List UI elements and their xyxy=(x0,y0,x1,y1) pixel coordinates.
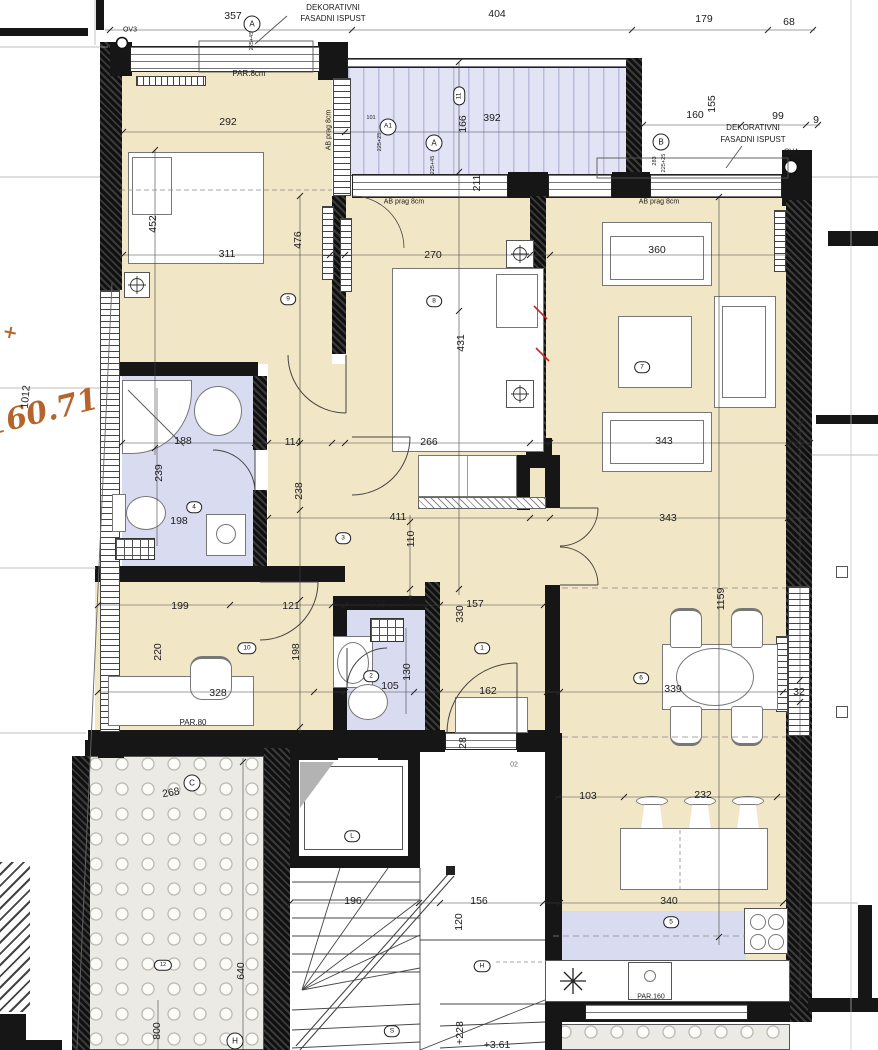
dining-table-top xyxy=(676,648,754,706)
dim: 162 xyxy=(479,686,497,697)
column-marker xyxy=(836,706,848,718)
dim: 330 xyxy=(455,605,466,623)
dim: 33 xyxy=(790,434,801,446)
dim: 339 xyxy=(664,684,682,695)
neighbor-wall xyxy=(808,998,878,1012)
dim: 110 xyxy=(406,531,417,548)
neighbor-wall xyxy=(858,905,872,1000)
dim: 198 xyxy=(170,516,188,527)
dim: 157 xyxy=(466,599,484,610)
room-label-entry-1: 1 xyxy=(474,642,490,654)
dim: 32 xyxy=(793,687,805,698)
dim: 68 xyxy=(783,17,795,28)
wall xyxy=(110,42,132,76)
wall-wc-top xyxy=(345,596,430,610)
terrace-bottom-strip xyxy=(557,1024,790,1050)
chair xyxy=(731,608,763,648)
window-mark: 225+25 xyxy=(378,133,384,152)
room-label-elevator-L: L xyxy=(344,830,360,842)
wall-corner xyxy=(782,150,812,206)
note-dekorativni: FASADNI ISPUST xyxy=(720,136,785,144)
dim: 800 xyxy=(152,1022,163,1040)
dim: 220 xyxy=(153,643,164,661)
wall-terrace-top xyxy=(85,740,290,756)
dim: 452 xyxy=(148,215,159,233)
note-dekorativni: DEKORATIVNI xyxy=(306,4,360,12)
dim: 404 xyxy=(488,9,506,20)
dim: 211 xyxy=(472,175,483,192)
chair xyxy=(731,706,763,746)
terrace-bottom-left xyxy=(88,756,264,1050)
dim: 311 xyxy=(219,249,236,260)
burner xyxy=(750,914,766,930)
sill-bedroom-terrace xyxy=(333,78,351,196)
dim: 156 xyxy=(470,896,488,907)
wall-bathroom-top xyxy=(120,362,258,376)
column-box xyxy=(506,380,534,408)
kitchen-island xyxy=(620,828,768,890)
dim: 357 xyxy=(224,11,242,22)
radiator xyxy=(136,76,206,86)
wall-bathroom-right xyxy=(253,376,267,450)
toilet-bowl xyxy=(126,496,166,530)
room-label-bedroom-9: 9 xyxy=(280,293,296,305)
window-terrace-door xyxy=(352,174,508,198)
dim: 340 xyxy=(660,896,678,907)
threshold-hatch xyxy=(418,497,546,509)
room-label-terrace-12: 12 xyxy=(154,960,172,971)
note-dekorativni: FASADNI ISPUST xyxy=(300,15,365,23)
window-bedroom-9 xyxy=(130,46,320,72)
wall-terrace-left xyxy=(72,756,90,1050)
window-living xyxy=(650,174,782,198)
dim: 411 xyxy=(390,512,407,523)
window-mark: 101 xyxy=(366,116,375,122)
dim: 640 xyxy=(236,962,247,980)
dim: 431 xyxy=(456,334,467,352)
dim: 343 xyxy=(659,513,677,524)
note-dekorativni: DEKORATIVNI xyxy=(726,124,780,132)
room-label-terrace-11: 11 xyxy=(453,87,465,106)
dim: 1159 xyxy=(716,588,727,611)
dim: 392 xyxy=(483,113,501,124)
note-ab-prag: AB prag 8cm xyxy=(639,199,679,206)
pillow xyxy=(132,157,172,215)
room-label-stair-S: S xyxy=(384,1025,400,1037)
window-mark: 225+45 xyxy=(431,156,437,175)
room-label-kitchen-5: 5 xyxy=(663,916,679,928)
vent-label: OV4 xyxy=(784,149,798,156)
armchair-seat xyxy=(722,306,766,398)
column-box xyxy=(124,272,150,298)
bathroom-cabinet xyxy=(115,538,155,560)
radiator xyxy=(774,210,786,272)
note-ab-prag: AB prag 8cm xyxy=(326,110,333,150)
dim: 155 xyxy=(707,95,718,113)
wall xyxy=(0,28,88,36)
room-label-stair-H: H xyxy=(474,960,491,972)
terrace-parapet xyxy=(347,58,630,68)
marker-B: B xyxy=(653,134,670,151)
wardrobe-divider xyxy=(467,456,468,496)
room-label-hall-3: 3 xyxy=(335,532,351,544)
room-label-wc-2: 2 xyxy=(363,670,379,682)
window xyxy=(548,174,612,198)
dim: 198 xyxy=(291,643,302,661)
room-label-bedroom-8: 8 xyxy=(426,295,442,307)
room-label-bathroom-4: 4 xyxy=(186,501,202,513)
bathroom-sink xyxy=(194,386,242,436)
wall-terrace-right xyxy=(264,748,290,1050)
note-ab-prag: AB prag 8cm xyxy=(384,199,424,206)
note-parapet: PAR.160 xyxy=(637,994,665,1001)
chair xyxy=(670,706,702,746)
chair xyxy=(670,608,702,648)
dim: 199 xyxy=(171,601,189,612)
wall xyxy=(318,42,348,80)
dim: 270 xyxy=(424,250,442,261)
elevation-mark: +3.61 xyxy=(484,1040,511,1050)
floor-plan: 357 DEKORATIVNI FASADNI ISPUST 404 179 6… xyxy=(0,0,878,1050)
dim: 238 xyxy=(294,482,305,500)
window-kitchen xyxy=(585,1004,748,1020)
dim: 1012 xyxy=(20,385,32,409)
stairs xyxy=(292,866,545,1050)
sofa-seat xyxy=(610,236,704,280)
column-box xyxy=(506,240,534,268)
wall-pier xyxy=(508,172,548,198)
marker-A-top: A xyxy=(244,16,261,33)
dim: 105 xyxy=(381,681,399,692)
note-parapet: PAR.8cm xyxy=(232,70,265,78)
wall-left xyxy=(100,42,122,290)
wc-window-box xyxy=(370,618,404,642)
coffee-table xyxy=(618,316,692,388)
dim: 266 xyxy=(420,437,438,448)
note-02: 02 xyxy=(510,762,518,769)
floor-kitchen-counter-zone xyxy=(551,911,746,962)
dim: 125 xyxy=(369,599,387,610)
oven-knob xyxy=(644,970,656,982)
dim: 166 xyxy=(458,115,469,133)
wall xyxy=(545,585,560,733)
site-hatch-bottom-left xyxy=(0,862,30,1012)
window-mark: 225+45 xyxy=(250,32,256,51)
terrace-parapet-right xyxy=(626,58,642,178)
dim: 179 xyxy=(695,14,713,25)
dim: 328 xyxy=(209,688,227,699)
neighbor-wall xyxy=(816,415,878,424)
burner xyxy=(768,934,784,950)
wall xyxy=(0,1040,62,1050)
window-mark: 225+25 xyxy=(662,154,668,173)
dim: 121 xyxy=(282,601,300,612)
dim: 292 xyxy=(219,117,237,128)
wall xyxy=(96,0,104,30)
wall xyxy=(545,455,560,508)
wall-pier xyxy=(612,172,650,198)
column-marker xyxy=(836,566,848,578)
dim: 476 xyxy=(293,231,304,249)
wall-wc-right xyxy=(425,582,440,733)
dim: 103 xyxy=(579,791,597,802)
dim: 120 xyxy=(454,913,465,931)
marker-A-terrace: A xyxy=(426,135,443,152)
pillow xyxy=(496,274,538,328)
wall-mid xyxy=(95,566,345,582)
dim: 232 xyxy=(694,790,712,801)
dim: 160 xyxy=(686,110,704,121)
washing-machine-drum xyxy=(216,524,236,544)
burner xyxy=(750,934,766,950)
radiator xyxy=(322,206,334,280)
window-mark: 283 xyxy=(653,156,659,165)
elevator-door-gap xyxy=(338,758,378,765)
dim: 9 xyxy=(813,115,819,126)
room-label-living-7: 7 xyxy=(634,361,650,373)
wall-bathroom-right xyxy=(253,490,267,568)
dim: 188 xyxy=(174,436,192,447)
closet-entry xyxy=(455,697,528,733)
dim: 99 xyxy=(772,111,784,122)
neighbor-wall xyxy=(828,231,878,246)
radiator xyxy=(340,218,352,292)
room-label-office-10: 10 xyxy=(237,642,256,654)
window-right-wall xyxy=(788,586,810,736)
marker-A1: A1 xyxy=(380,119,397,136)
note-parapet: PAR.80 xyxy=(180,719,207,727)
dim: 360 xyxy=(648,245,666,256)
dim: 343 xyxy=(655,436,673,447)
marker-C: C xyxy=(184,775,201,792)
survey-level-handwritten: 160.71 xyxy=(0,385,101,442)
marker-H: H xyxy=(227,1033,244,1050)
burner xyxy=(768,914,784,930)
dim: 114 xyxy=(285,437,302,448)
dim: 239 xyxy=(154,464,165,482)
survey-cross-handwritten: + xyxy=(1,323,20,344)
dim: 196 xyxy=(344,896,362,907)
dim: 130 xyxy=(402,663,413,681)
room-label-dining-6: 6 xyxy=(633,672,649,684)
vent-label: OV3 xyxy=(123,27,137,34)
toilet-tank xyxy=(112,494,126,532)
dim: 69 xyxy=(406,595,417,607)
dim: 28 xyxy=(458,737,469,749)
elevation-mark: +228 xyxy=(455,1021,466,1045)
